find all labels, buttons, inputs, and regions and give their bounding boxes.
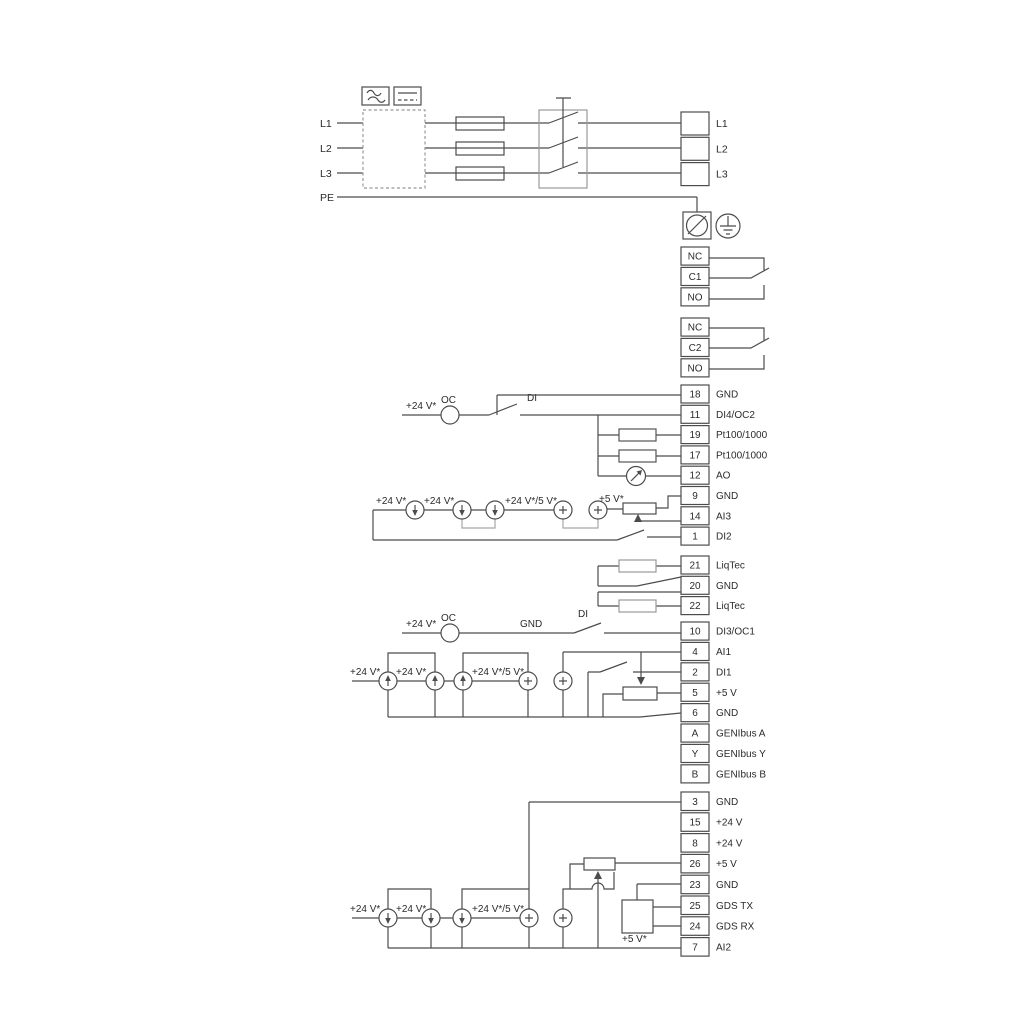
dc-symbol-box xyxy=(394,87,421,105)
terminal-pin: B xyxy=(692,769,699,780)
oc-annotation: OC xyxy=(441,613,456,624)
terminal-label: AI1 xyxy=(716,647,731,658)
resistor-icon xyxy=(619,600,656,612)
terminal-pin: 23 xyxy=(689,880,701,891)
voltage-annotation: +24 V*/5 V* xyxy=(472,667,524,678)
power-input-label: PE xyxy=(320,192,334,204)
power-output-label: L2 xyxy=(716,143,728,155)
open-collector-icon xyxy=(441,406,459,424)
terminal-pin: 10 xyxy=(689,627,701,638)
terminal-label: LiqTec xyxy=(716,561,745,572)
relay-terminal-label: NC xyxy=(688,252,702,263)
relay-terminal-label: C1 xyxy=(689,272,702,283)
terminal-label: GENIbus A xyxy=(716,729,766,740)
terminal-label: GND xyxy=(716,581,738,592)
power-input-label: L2 xyxy=(320,143,332,155)
terminal-pin: 11 xyxy=(690,410,701,421)
relay-terminal-label: C2 xyxy=(689,343,702,354)
di-annotation: DI xyxy=(578,609,588,620)
fuse-icon xyxy=(456,142,504,155)
terminal-pin: A xyxy=(692,729,699,740)
power-input-label: L3 xyxy=(320,168,332,180)
ac-symbol-box xyxy=(362,87,389,105)
terminal-pin: 24 xyxy=(689,922,701,933)
terminal-pin: 1 xyxy=(692,532,698,543)
terminal-pin: 26 xyxy=(689,859,701,870)
voltage-annotation: +24 V* xyxy=(396,904,426,915)
terminal-pin: 22 xyxy=(689,601,701,612)
resistor-icon xyxy=(619,450,656,462)
power-section: L1 L2 L3 PE xyxy=(320,87,740,239)
power-wires xyxy=(337,123,697,212)
terminal-pin: 15 xyxy=(689,818,701,829)
potentiometer-icon xyxy=(623,496,681,522)
power-output-label: L1 xyxy=(716,118,728,130)
terminal-label: GND xyxy=(716,491,738,502)
terminal-pin: 25 xyxy=(689,901,701,912)
terminal-pin: 5 xyxy=(692,688,698,699)
terminal-pin: 14 xyxy=(689,511,701,522)
terminal-pin: 4 xyxy=(692,647,698,658)
terminal-label: GND xyxy=(716,880,738,891)
terminal-label: DI3/OC1 xyxy=(716,627,755,638)
terminal-pin: 8 xyxy=(692,838,698,849)
terminal-pin: 18 xyxy=(689,390,701,401)
terminal-pin: 2 xyxy=(692,667,698,678)
terminal-label: GND xyxy=(716,797,738,808)
terminal-label: Pt100/1000 xyxy=(716,430,768,441)
terminal-pin: 17 xyxy=(689,450,701,461)
gnd-annotation: GND xyxy=(520,619,542,630)
terminal-label: LiqTec xyxy=(716,601,745,612)
relay-terminal-label: NO xyxy=(688,363,703,374)
terminal-label: GDS RX xyxy=(716,922,755,933)
terminal-label: +5 V xyxy=(716,859,737,870)
voltage-annotation: +24 V*/5 V* xyxy=(472,904,524,915)
voltage-annotation: +5 V* xyxy=(622,934,647,945)
potentiometer-icon xyxy=(603,687,681,717)
terminal-pin: 3 xyxy=(692,797,698,808)
voltage-annotation: +24 V* xyxy=(406,401,436,412)
relay-terminal-label: NC xyxy=(688,323,702,334)
terminal-label: GDS TX xyxy=(716,901,753,912)
terminal-label: GND xyxy=(716,390,738,401)
terminal-label: +24 V xyxy=(716,818,743,829)
relay-2-contact xyxy=(709,328,769,369)
voltage-annotation: +24 V* xyxy=(376,496,406,507)
oc-annotation: OC xyxy=(441,395,456,406)
gds-ai2-circuit: +24 V* +24 V* +24 V*/5 V* +5 V* xyxy=(350,802,681,948)
relay-terminal-label: NO xyxy=(688,292,703,303)
terminal-label: Pt100/1000 xyxy=(716,450,768,461)
resistor-icon xyxy=(619,560,656,572)
fuse-icon xyxy=(456,117,504,130)
voltage-annotation: +24 V* xyxy=(424,496,454,507)
ai1-di1-circuit: +24 V* +24 V* +24 V*/5 V* xyxy=(350,652,681,717)
terminal-pin: 9 xyxy=(692,491,698,502)
terminal-label: AO xyxy=(716,471,731,482)
terminal-cell xyxy=(681,137,709,160)
terminal-pin: 21 xyxy=(689,561,701,572)
emc-filter-box xyxy=(363,110,425,188)
earth-icon xyxy=(716,214,740,238)
resistor-icon xyxy=(619,429,656,441)
terminal-label: AI2 xyxy=(716,942,731,953)
terminal-pin: 19 xyxy=(689,430,701,441)
pe-screw-terminal-icon xyxy=(683,212,711,239)
wiring-diagram: L1 L2 L3 PE xyxy=(0,0,1024,1024)
terminal-label: DI2 xyxy=(716,532,732,543)
relay-1-contact xyxy=(709,258,769,299)
terminal-label: +24 V xyxy=(716,838,743,849)
terminal-cell xyxy=(681,112,709,135)
terminal-label: GND xyxy=(716,708,738,719)
fuse-icon xyxy=(456,167,504,180)
terminal-label: GENIbus Y xyxy=(716,749,766,760)
terminal-pin: 7 xyxy=(692,942,698,953)
voltage-annotation: +24 V* xyxy=(406,619,436,630)
terminal-cell xyxy=(681,163,709,186)
open-collector-icon xyxy=(441,624,459,642)
ao-meter-icon xyxy=(627,467,646,486)
terminal-pin: 12 xyxy=(689,471,701,482)
gds-sensor-box xyxy=(622,900,681,933)
terminal-pin: 6 xyxy=(692,708,698,719)
voltage-annotation: +24 V*/5 V* xyxy=(505,496,557,507)
terminal-label: DI4/OC2 xyxy=(716,410,755,421)
voltage-annotation: +24 V* xyxy=(350,667,380,678)
terminal-pin: Y xyxy=(692,749,699,760)
voltage-annotation: +24 V* xyxy=(350,904,380,915)
terminal-label: AI3 xyxy=(716,511,731,522)
voltage-annotation: +24 V* xyxy=(396,667,426,678)
terminal-label: +5 V xyxy=(716,688,737,699)
di2-switch-icon xyxy=(373,530,681,540)
main-switch-icon xyxy=(539,98,587,188)
power-output-label: L3 xyxy=(716,169,728,181)
terminal-label: DI1 xyxy=(716,667,732,678)
terminal-pin: 20 xyxy=(689,581,701,592)
power-input-label: L1 xyxy=(320,118,332,130)
terminal-label: GENIbus B xyxy=(716,769,766,780)
